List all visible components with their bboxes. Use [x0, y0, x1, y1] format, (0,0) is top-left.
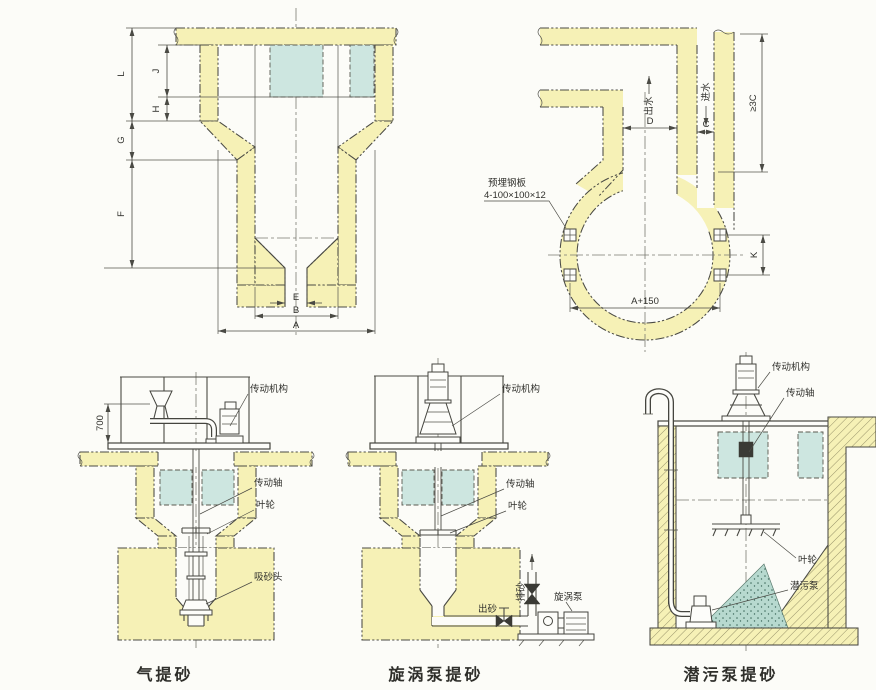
top-slab [176, 28, 396, 45]
platform-deck [108, 443, 270, 449]
bottom-slab-right [307, 285, 356, 307]
dimension-chain-left: L G F J H [116, 28, 167, 268]
taper-right [456, 518, 496, 536]
drive-label: 传动机构 [250, 383, 288, 395]
cone-stand [420, 403, 456, 434]
dim-B: B [293, 305, 299, 316]
sand-pile [700, 564, 788, 628]
plate-note-line1: 预埋钢板 [488, 177, 527, 189]
outflow-label: 出水 [643, 96, 655, 116]
impeller-label: 叶轮 [508, 500, 528, 512]
pipe-collar [187, 576, 205, 579]
taper-left [136, 518, 176, 536]
motor-cap [225, 402, 236, 409]
caption-submersible: 潜污泵提砂 [683, 665, 778, 684]
throat-right [216, 536, 234, 548]
motor-base [216, 436, 243, 443]
bottom-slab [650, 628, 858, 645]
sump-wall-left [237, 147, 255, 285]
drive-unit [722, 356, 770, 421]
caption-vortex: 旋涡泵提砂 [387, 665, 483, 684]
lower-channel-wall [540, 90, 623, 107]
drive-motor [428, 372, 448, 400]
intake-horn [150, 391, 172, 406]
shaft-label: 传动轴 [786, 387, 815, 399]
impeller-hub [741, 515, 751, 524]
impeller-label: 叶轮 [798, 554, 818, 566]
taper-right [216, 518, 256, 536]
steel-plate [714, 269, 726, 281]
tank-wall-left [380, 466, 398, 518]
dim-3C: ≥3C [748, 94, 759, 111]
lower-wall-return [603, 107, 623, 162]
drive-label: 传动机构 [772, 361, 810, 373]
dim-E: E [293, 292, 299, 303]
taper-left [380, 518, 420, 536]
pump-eye [544, 617, 553, 626]
throat-left [402, 536, 420, 548]
throat-left [158, 536, 176, 548]
submersible-figure: 传动机构 传动轴 叶轮 潜污泵 潜污泵提砂 [643, 352, 876, 684]
stand-base [722, 416, 770, 421]
drive-label: 传动机构 [502, 383, 540, 395]
suction-head-label: 吸砂头 [254, 571, 283, 583]
suction-head-base [180, 610, 212, 615]
pump-baseplate [518, 634, 594, 640]
motor-cap [432, 364, 444, 372]
pipe-bore [432, 617, 530, 625]
impeller-label: 叶轮 [256, 499, 276, 511]
plate-note-line2: 4-100×100×12 [484, 190, 546, 201]
dim-D: D [647, 116, 654, 127]
sand-riser-label: 排砂 [515, 582, 527, 602]
motor-cap [740, 356, 752, 364]
engineering-drawing-page: L G F J H E B A [0, 0, 876, 690]
plate-note-leader [484, 201, 566, 228]
pump-base [686, 622, 716, 628]
slab-opening [396, 451, 482, 467]
upper-wall-right [375, 45, 393, 121]
tank-cover [658, 421, 846, 426]
shaft-label: 传动轴 [254, 477, 283, 489]
outer-right-wall [714, 32, 734, 208]
suction-head [182, 600, 210, 610]
hopper-fill-right [307, 238, 338, 285]
steel-plate [564, 229, 576, 241]
upper-channel-wall [540, 28, 697, 45]
tank-wall-right [478, 466, 496, 518]
dim-A: A [293, 320, 300, 331]
steel-plate [564, 269, 576, 281]
pipe-flange [185, 552, 207, 556]
coupling [558, 618, 564, 628]
pump-body [690, 606, 712, 622]
dim-H: H [151, 105, 162, 112]
caption-airlift: 气提砂 [135, 665, 193, 684]
slab-opening [158, 451, 234, 467]
plate-note: 预埋钢板 4-100×100×12 [484, 177, 566, 228]
inflow-label: 进水 [700, 82, 712, 102]
dim-K: K [749, 251, 760, 258]
height-dimension: 700 [95, 404, 150, 443]
submersible-pump [686, 596, 716, 628]
dim-L: L [116, 71, 127, 76]
sand-out-label: 出砂 [478, 603, 498, 615]
channel-c-cutout [697, 100, 714, 208]
sump-wall-right [338, 147, 356, 285]
dim-F: F [116, 211, 127, 217]
pump-label: 旋涡泵 [554, 591, 583, 603]
air-pipe [150, 421, 214, 437]
vortex-figure: 出砂 排砂 旋涡泵 传动机构 传动轴 叶轮 旋涡泵提砂 [346, 358, 594, 684]
wall-opening-window [798, 432, 823, 478]
dim-G: G [116, 136, 127, 143]
impeller-symbol [182, 528, 210, 533]
plan-view: D C ≥3C K A+150 出水 进水 预埋钢板 4-100×100×12 [484, 28, 770, 352]
tank-wall-left [136, 466, 154, 518]
dim-J: J [151, 68, 162, 73]
steel-plate [714, 229, 726, 241]
pump-label: 潜污泵 [790, 580, 819, 592]
motor-flange [733, 390, 759, 394]
diagram-canvas: L G F J H E B A [0, 0, 876, 690]
dim-700: 700 [95, 415, 106, 431]
shaft-label: 传动轴 [506, 478, 535, 490]
divider-wall [677, 45, 697, 175]
hopper-fill-left [255, 238, 285, 285]
section-view: L G F J H E B A [104, 8, 398, 338]
platform-deck [370, 443, 508, 449]
wall-opening-window [350, 45, 374, 97]
bottom-slab-left [237, 285, 285, 307]
tank-wall-right [828, 417, 876, 628]
wall-opening-window [442, 470, 474, 505]
wall-opening-window [270, 45, 323, 97]
drive-motor [220, 409, 239, 434]
wall-opening-window [402, 470, 434, 505]
pump-motor-top [694, 596, 706, 606]
dim-A150: A+150 [631, 296, 659, 307]
wall-opening-window [160, 470, 192, 505]
pump-motor [564, 612, 588, 634]
airlift-figure: 700 传动机构 传动轴 [78, 372, 314, 684]
upper-wall-left [200, 45, 218, 121]
stand-base [416, 437, 460, 443]
platform-railing [108, 377, 270, 449]
throat-right [456, 536, 474, 548]
drive-motor [736, 364, 756, 390]
